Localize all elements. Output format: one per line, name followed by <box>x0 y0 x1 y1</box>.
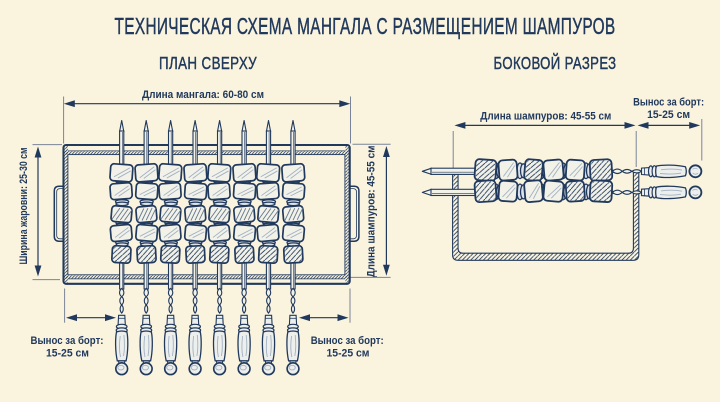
svg-text:15-25 см: 15-25 см <box>647 109 690 121</box>
svg-text:Вынос за борт:: Вынос за борт: <box>311 335 384 347</box>
svg-text:Ширина жаровни: 25-30 см: Ширина жаровни: 25-30 см <box>18 148 30 265</box>
svg-text:15-25 см: 15-25 см <box>327 347 370 359</box>
svg-text:БОКОВОЙ РАЗРЕЗ: БОКОВОЙ РАЗРЕЗ <box>494 53 617 73</box>
svg-text:Вынос за борт:: Вынос за борт: <box>633 96 704 108</box>
svg-text:Вынос за борт:: Вынос за борт: <box>31 335 104 347</box>
svg-text:Длина шампуров: 45-55 см: Длина шампуров: 45-55 см <box>366 146 378 278</box>
svg-text:15-25 см: 15-25 см <box>46 347 89 359</box>
svg-text:Длина шампуров: 45-55 см: Длина шампуров: 45-55 см <box>480 110 611 122</box>
svg-text:ТЕХНИЧЕСКАЯ СХЕМА МАНГАЛА С РА: ТЕХНИЧЕСКАЯ СХЕМА МАНГАЛА С РАЗМЕЩЕНИЕМ … <box>115 13 616 39</box>
svg-text:ПЛАН СВЕРХУ: ПЛАН СВЕРХУ <box>159 53 257 73</box>
svg-text:Длина мангала: 60-80 см: Длина мангала: 60-80 см <box>142 89 264 101</box>
